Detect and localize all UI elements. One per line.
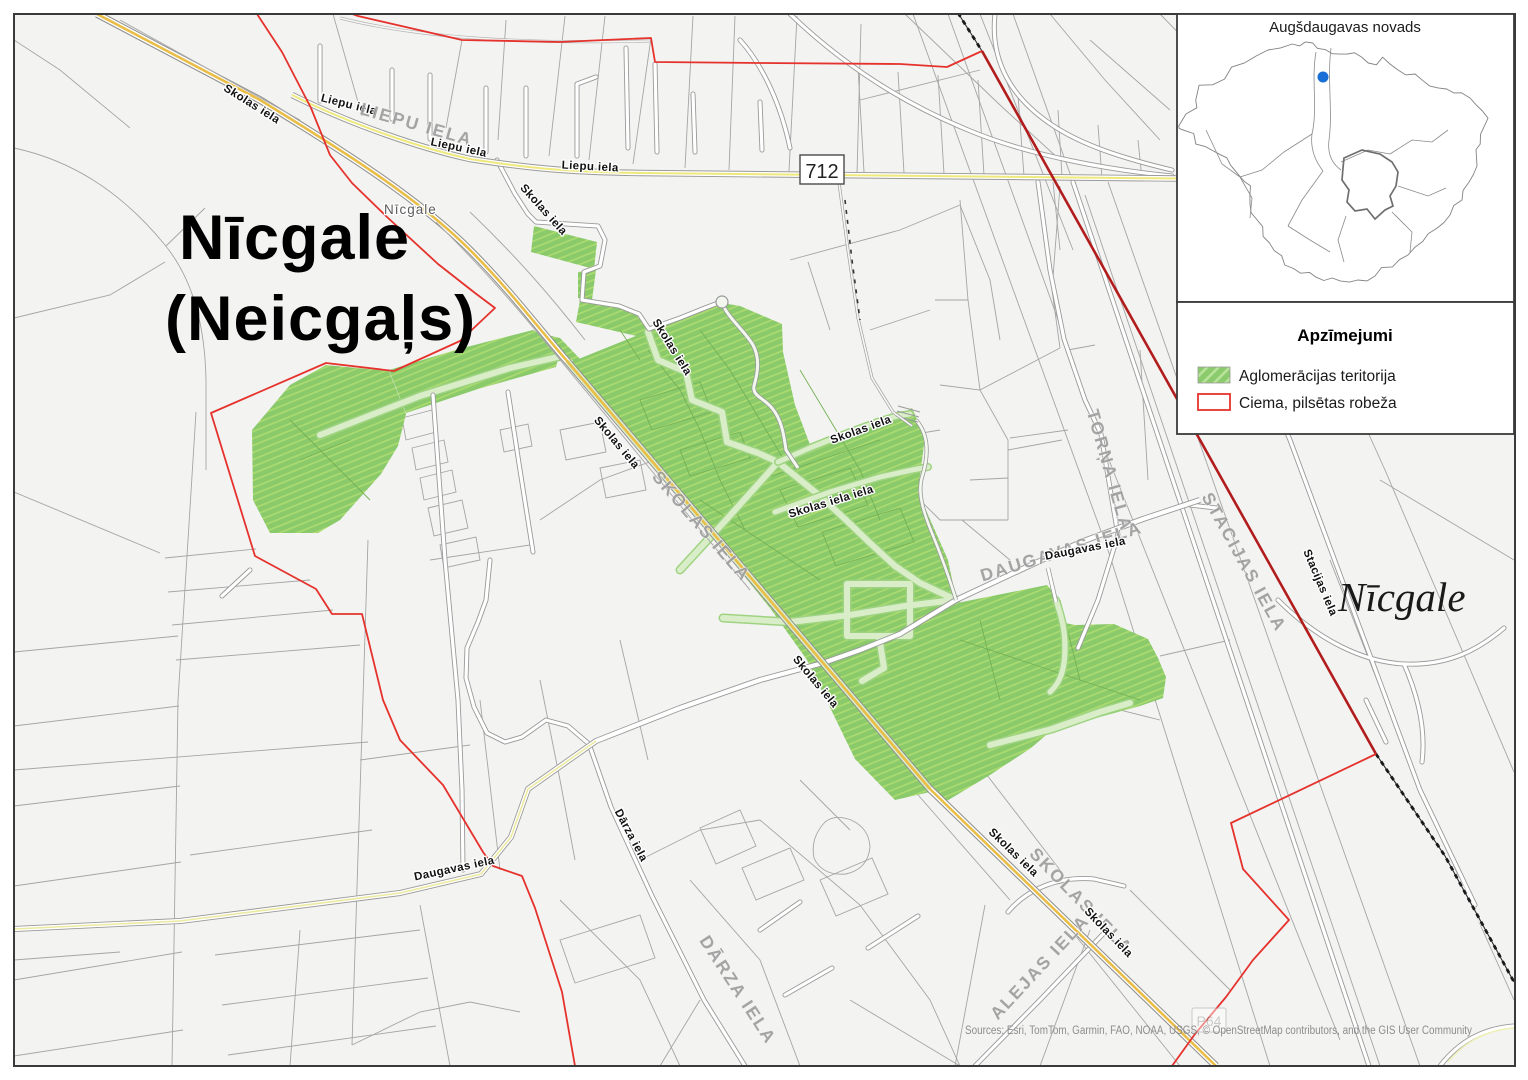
svg-text:Nīcgale: Nīcgale [179, 203, 410, 273]
svg-text:Nīcgale: Nīcgale [1337, 574, 1466, 620]
svg-text:Sources: Esri, TomTom, Garmin,: Sources: Esri, TomTom, Garmin, FAO, NOAA… [965, 1025, 1472, 1037]
svg-text:(Neicgaļs): (Neicgaļs) [165, 284, 476, 354]
svg-text:Augšdaugavas novads: Augšdaugavas novads [1269, 19, 1421, 36]
svg-text:Ciema, pilsētas robeža: Ciema, pilsētas robeža [1239, 395, 1397, 412]
svg-text:Apzīmejumi: Apzīmejumi [1297, 326, 1392, 345]
svg-text:Aglomerācijas teritorija: Aglomerācijas teritorija [1239, 368, 1396, 385]
svg-text:712: 712 [805, 161, 838, 183]
